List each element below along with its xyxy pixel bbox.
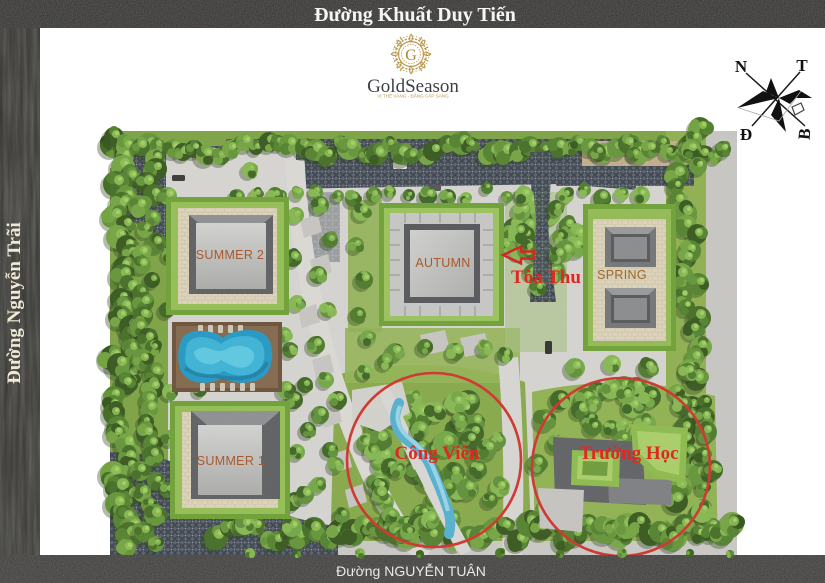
svg-text:Đường Khuất Duy Tiến: Đường Khuất Duy Tiến xyxy=(314,4,516,26)
svg-text:Trường Học: Trường Học xyxy=(579,443,678,464)
svg-text:G: G xyxy=(405,47,417,64)
svg-text:Đường NGUYỄN TUÂN: Đường NGUYỄN TUÂN xyxy=(336,563,486,579)
svg-text:B: B xyxy=(795,127,815,140)
svg-text:Đường Nguyễn Trãi: Đường Nguyễn Trãi xyxy=(4,222,25,384)
svg-text:N: N xyxy=(735,57,748,76)
svg-text:VỊ THẾ VÀNG - ĐẲNG CẤP SANG: VỊ THẾ VÀNG - ĐẲNG CẤP SANG xyxy=(377,93,449,99)
svg-text:Đ: Đ xyxy=(740,125,752,144)
svg-text:Tòa Thu: Tòa Thu xyxy=(511,267,581,288)
svg-text:Công Viên: Công Viên xyxy=(395,443,480,464)
svg-text:T: T xyxy=(796,56,808,75)
